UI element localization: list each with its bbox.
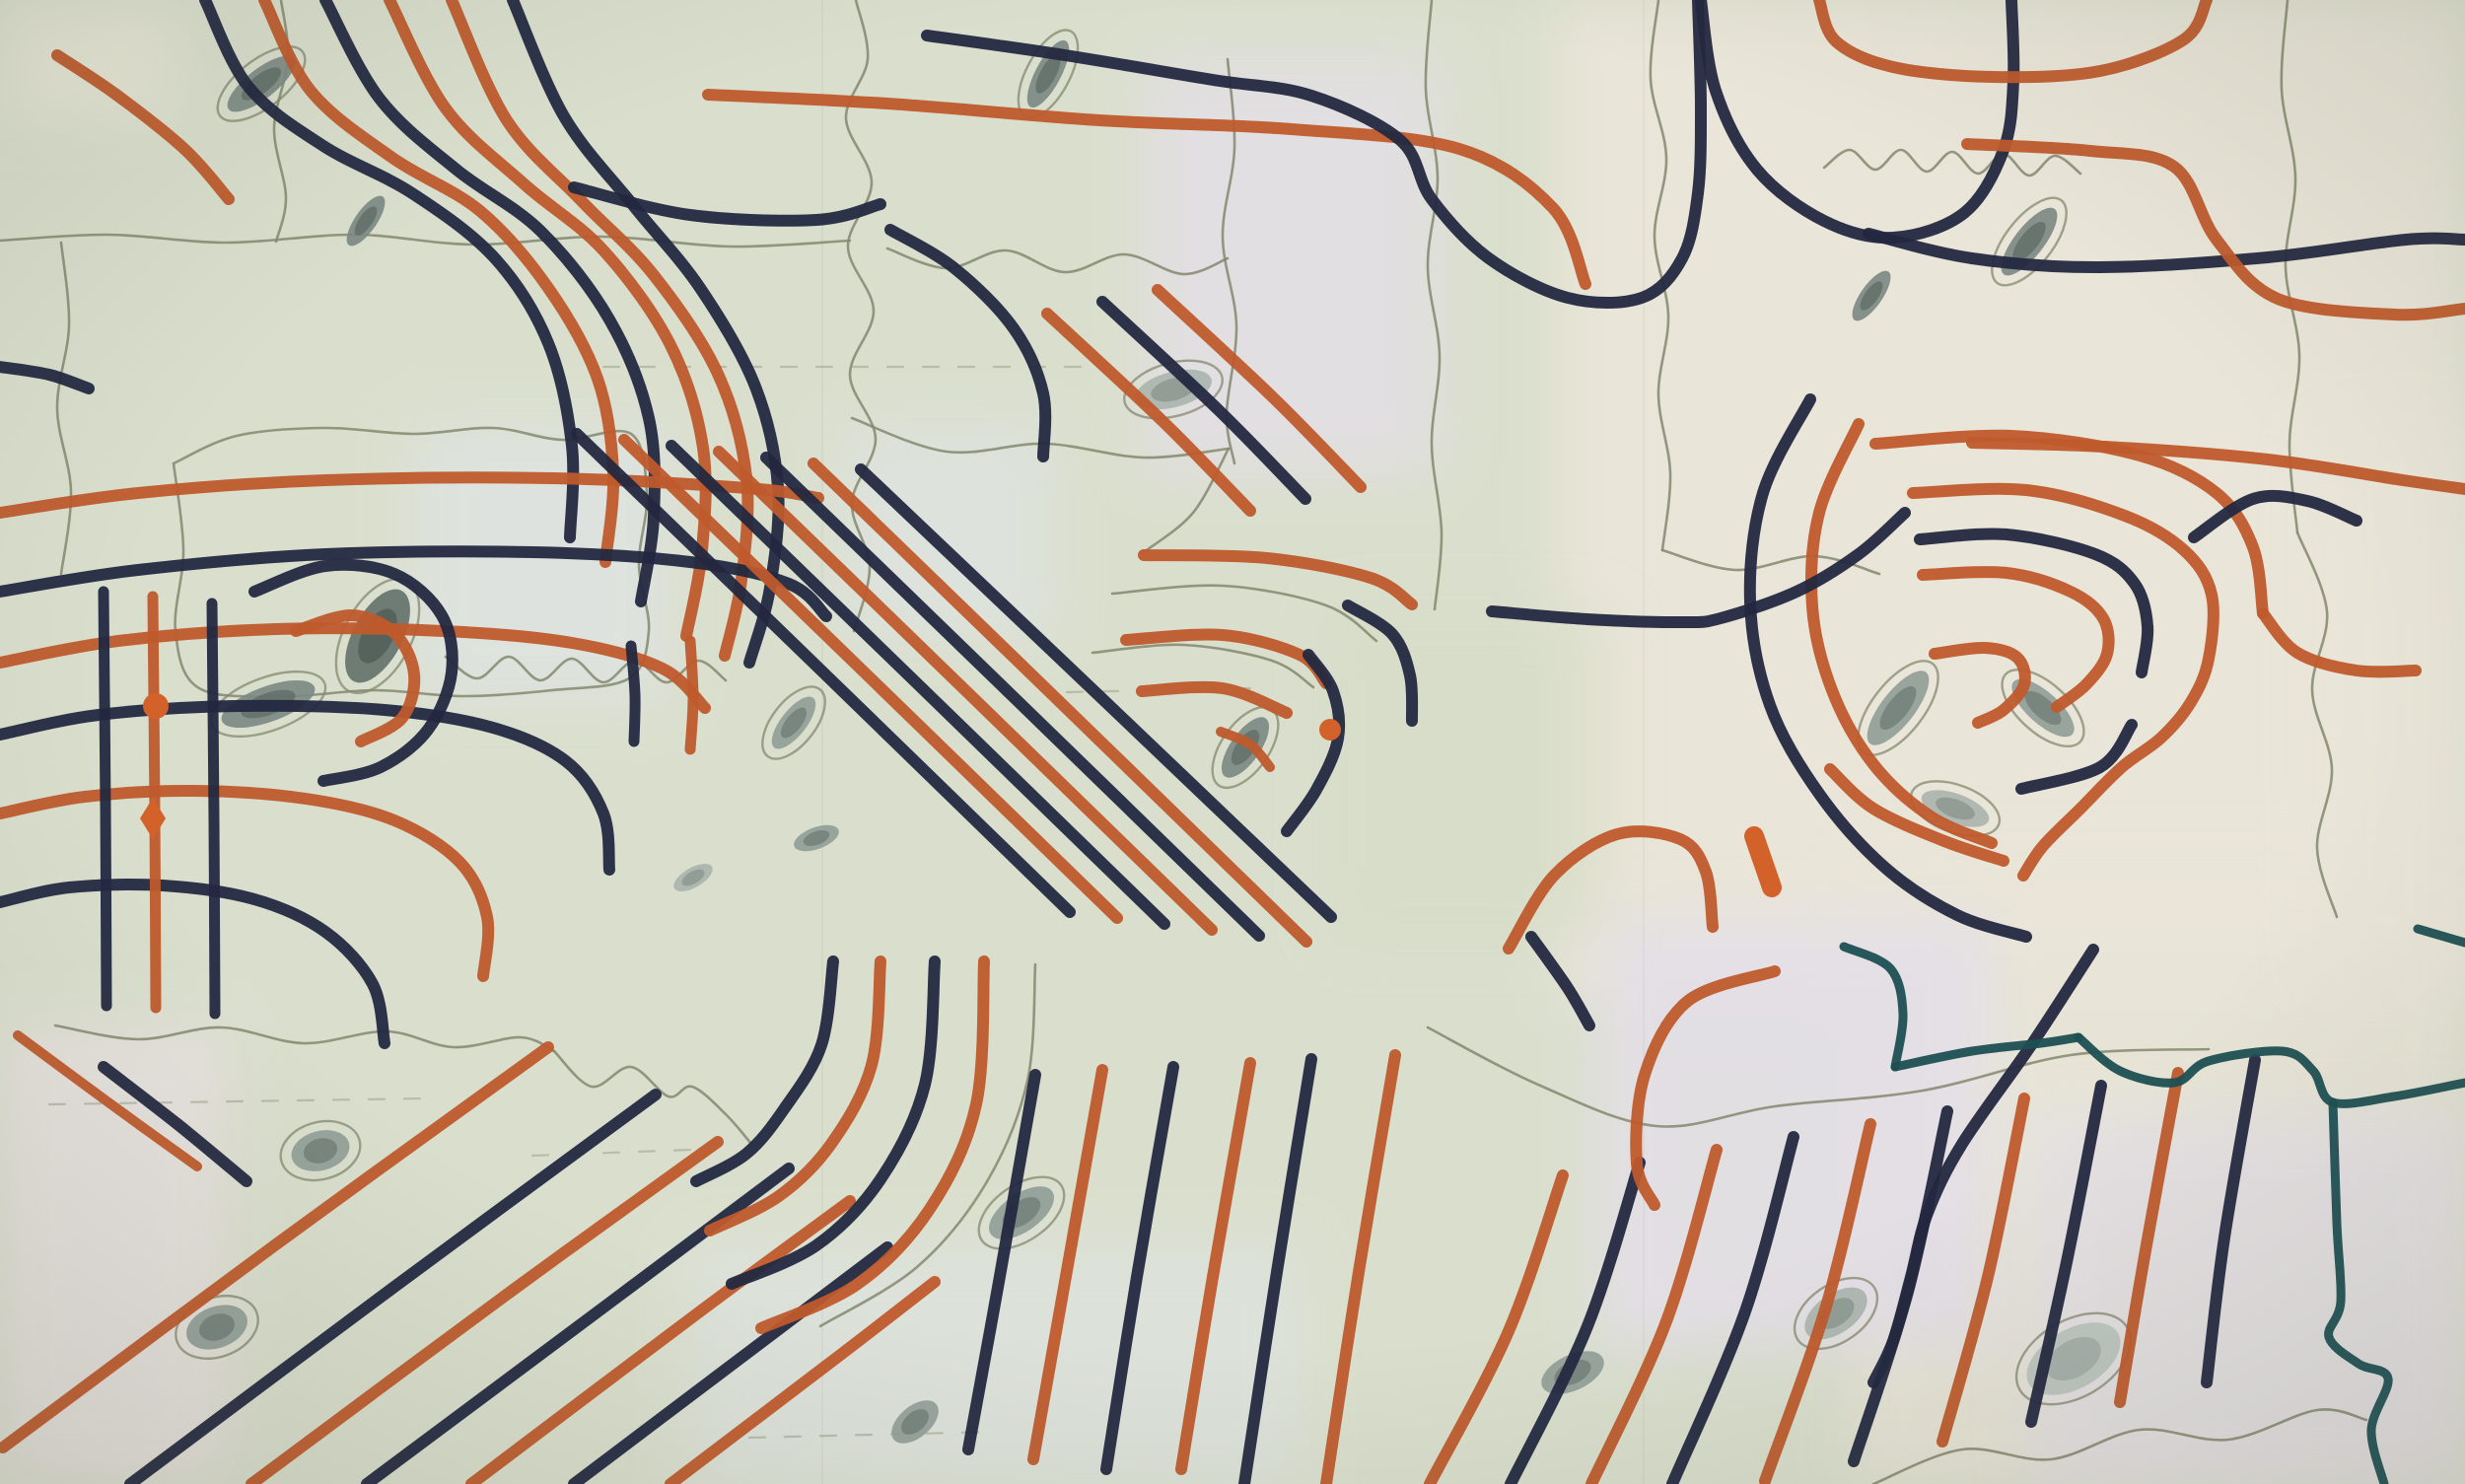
photo-vignette — [0, 0, 2465, 1484]
drawing-svg — [0, 0, 2465, 1484]
artwork-photo — [0, 0, 2465, 1484]
